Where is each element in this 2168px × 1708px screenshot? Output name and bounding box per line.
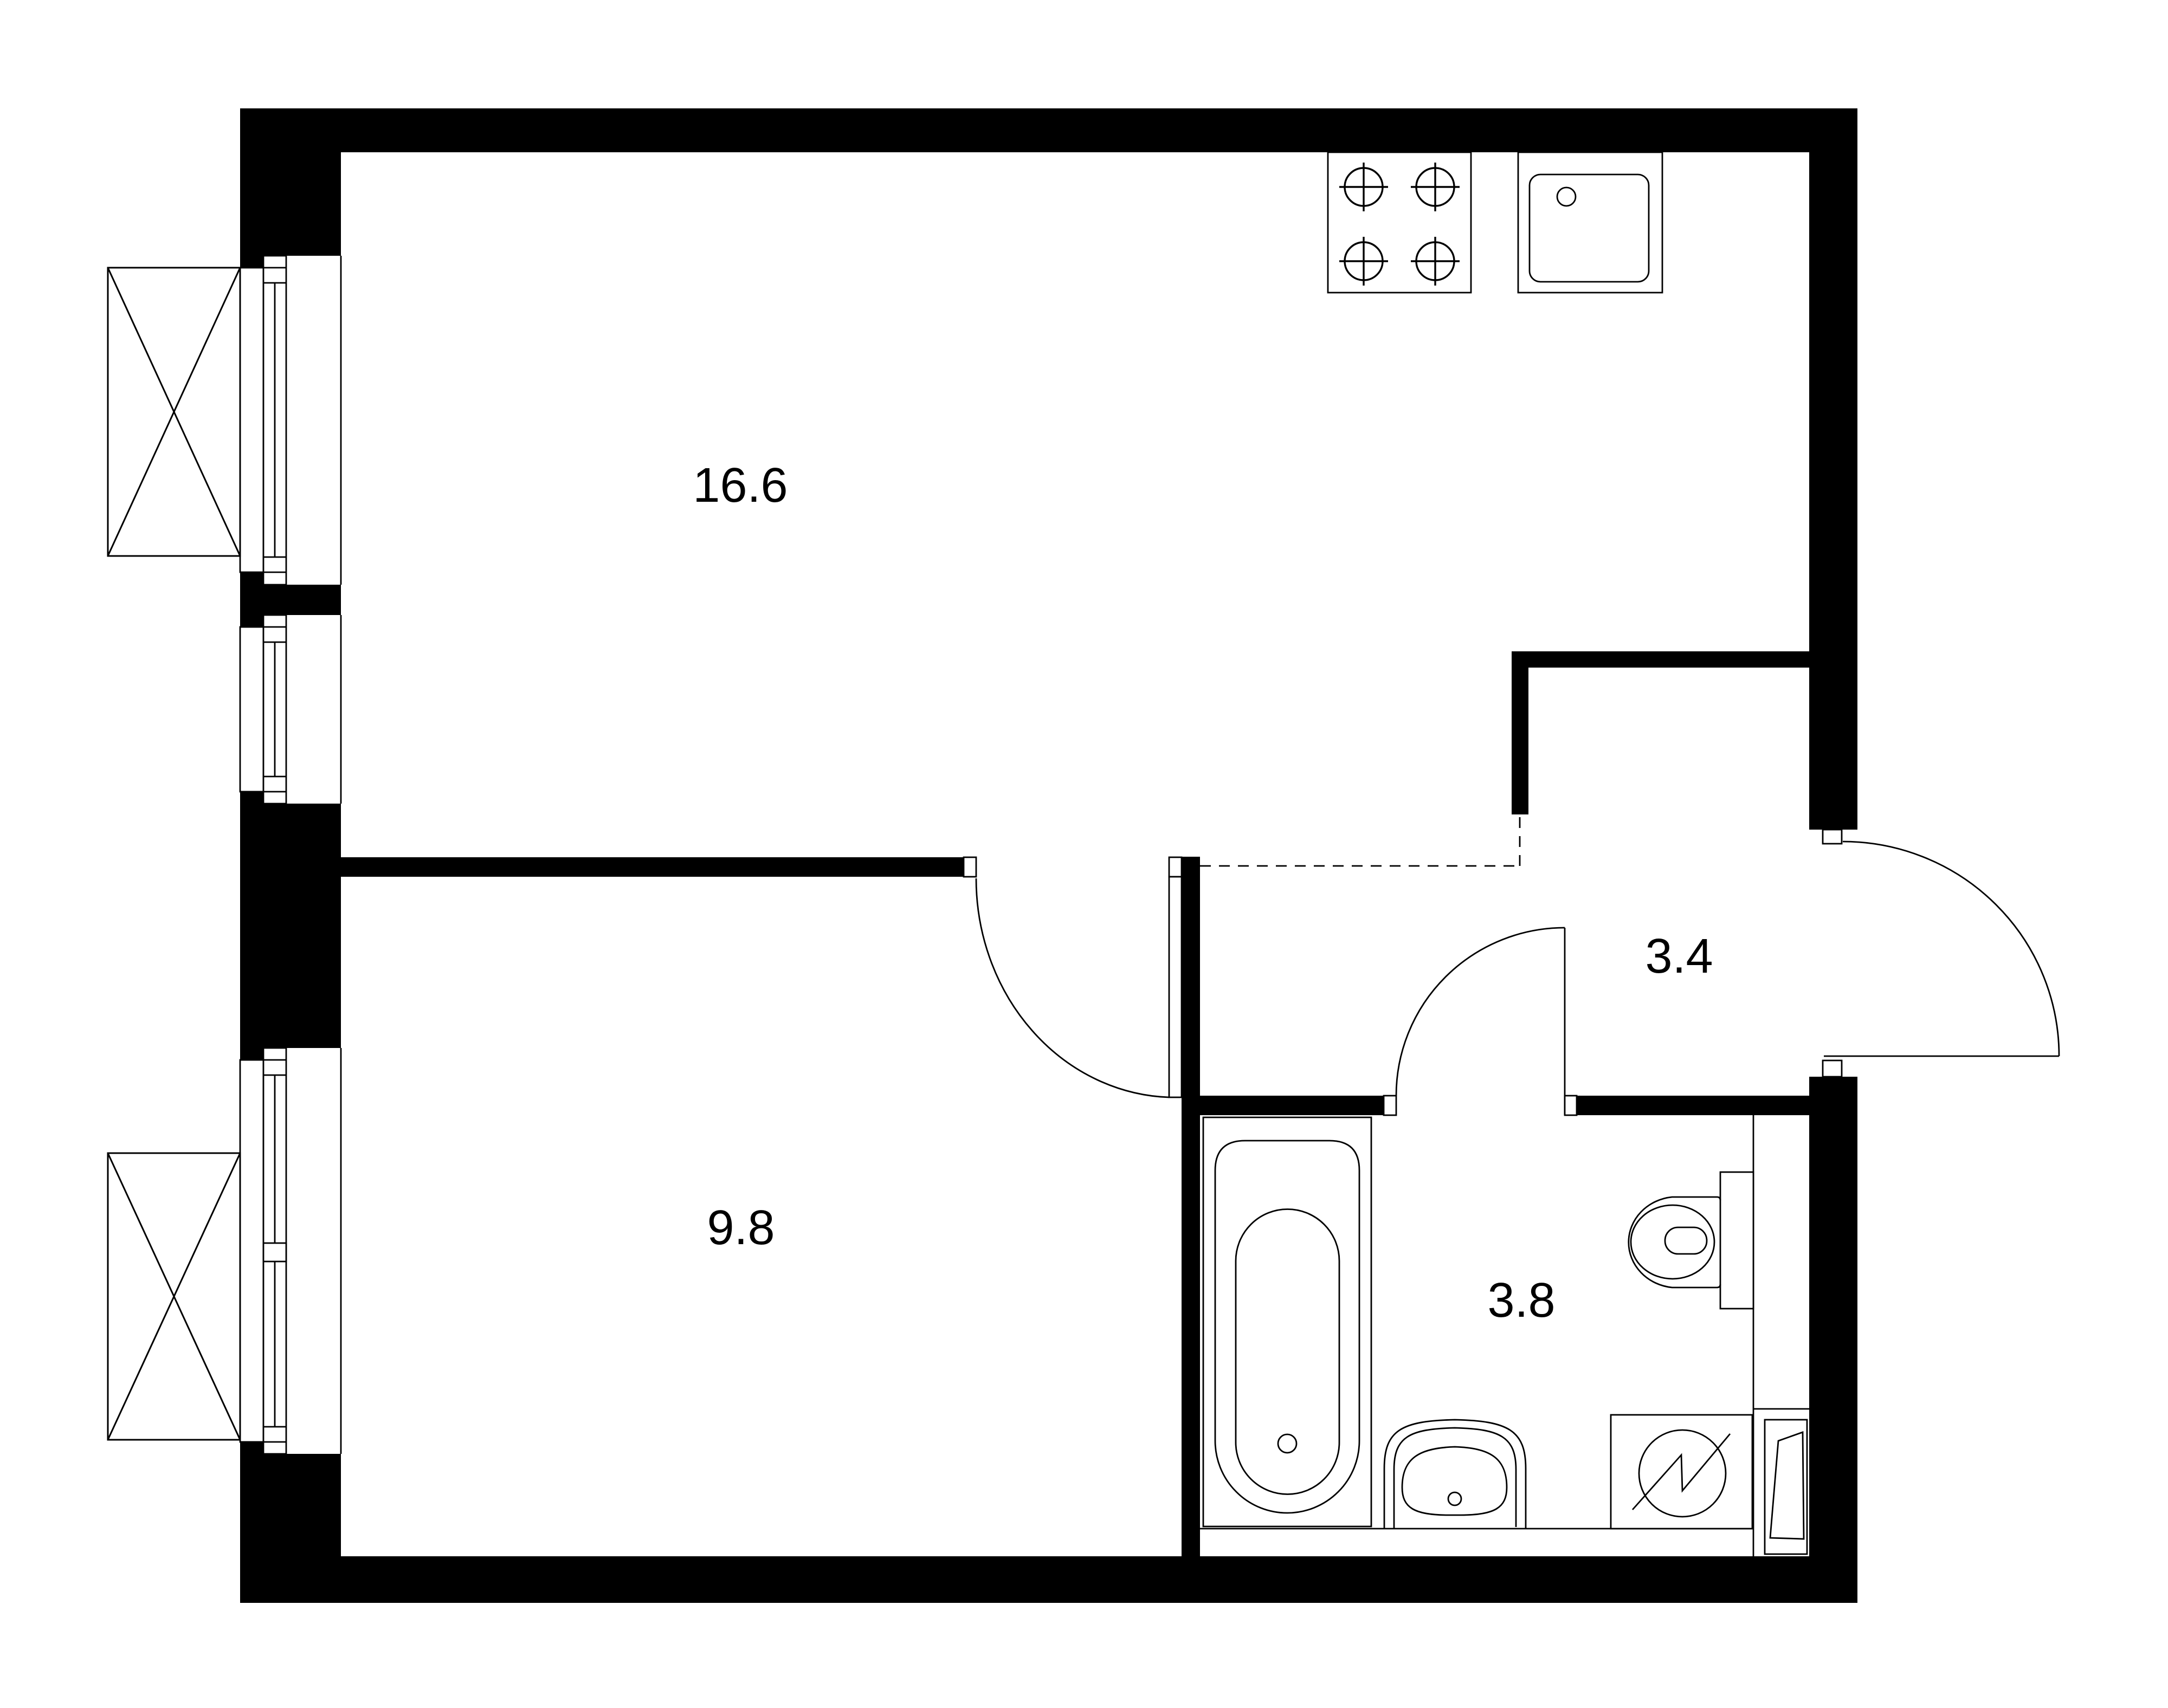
svg-text:9.8: 9.8 bbox=[707, 1201, 775, 1255]
svg-text:16.6: 16.6 bbox=[693, 458, 788, 513]
svg-text:3.8: 3.8 bbox=[1487, 1273, 1555, 1328]
svg-text:3.4: 3.4 bbox=[1645, 929, 1713, 984]
